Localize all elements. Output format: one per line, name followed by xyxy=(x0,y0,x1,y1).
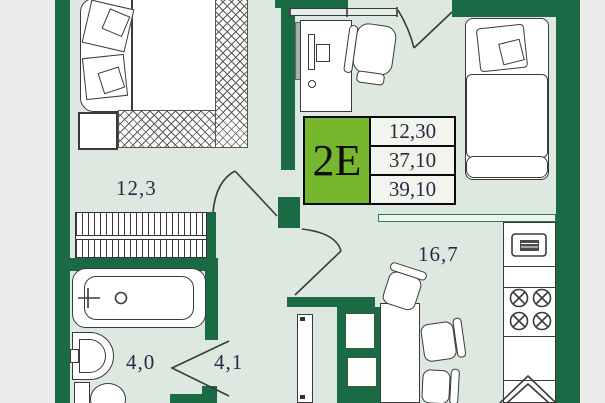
monitor-icon xyxy=(308,34,315,70)
cabinet-mark xyxy=(300,395,305,399)
dining-table xyxy=(380,303,420,403)
floor-plan: 12,3 4,0 4,1 16,7 2E 12,30 37,10 39,10 xyxy=(0,0,605,403)
wall-study-top xyxy=(275,0,348,8)
unit-area-living: 12,30 xyxy=(371,118,454,147)
toilet-tank xyxy=(74,382,90,403)
wall-stub-hall-top xyxy=(278,197,300,228)
window-study xyxy=(290,8,397,16)
nightstand xyxy=(78,112,118,150)
kitchen-counter xyxy=(503,222,556,403)
wall-bathroom-right xyxy=(205,258,218,340)
wall-left xyxy=(55,0,70,403)
outside-corner xyxy=(588,0,605,17)
room-label-bathroom: 4,0 xyxy=(126,350,155,375)
room-label-hallway: 4,1 xyxy=(214,350,243,375)
unit-code: 2E xyxy=(305,118,371,203)
pillow-icon xyxy=(82,54,128,100)
shaft-niche-bottom xyxy=(347,357,377,387)
office-chair xyxy=(342,19,402,88)
wall-hall-kitchen xyxy=(287,297,375,307)
counter-divider xyxy=(503,336,556,337)
mouse-icon xyxy=(308,80,316,88)
counter-divider xyxy=(503,380,556,381)
rug-lattice xyxy=(118,110,216,148)
shaft-niche-top xyxy=(345,313,375,349)
monitor-stand xyxy=(316,44,330,62)
washbasin-tap xyxy=(70,349,79,363)
wall-right xyxy=(556,17,580,403)
pillow-icon xyxy=(476,24,528,73)
unit-info-table: 2E 12,30 37,10 39,10 xyxy=(303,116,456,205)
rug-lattice xyxy=(215,0,248,148)
bathtub-inner xyxy=(84,276,194,320)
room-label-bedroom: 12,3 xyxy=(116,176,157,201)
dining-chair xyxy=(421,365,461,403)
bed-blanket xyxy=(466,74,548,158)
room-label-kitchen-living: 16,7 xyxy=(418,242,459,267)
counter-divider xyxy=(503,266,556,267)
wall-bedroom-study xyxy=(281,0,295,170)
unit-area-main: 37,10 xyxy=(371,147,454,176)
counter-divider xyxy=(503,287,556,288)
cabinet-mark xyxy=(300,317,305,321)
dining-chair xyxy=(419,313,467,366)
bed-footboard xyxy=(466,156,548,178)
wardrobe xyxy=(75,212,207,258)
wall-bathroom-door-stub2 xyxy=(202,386,217,403)
unit-area-total: 39,10 xyxy=(371,176,454,203)
outside-right xyxy=(580,0,605,403)
partition-kitchen xyxy=(378,214,556,222)
wall-top-right xyxy=(452,0,588,17)
hall-cabinet xyxy=(297,314,313,403)
